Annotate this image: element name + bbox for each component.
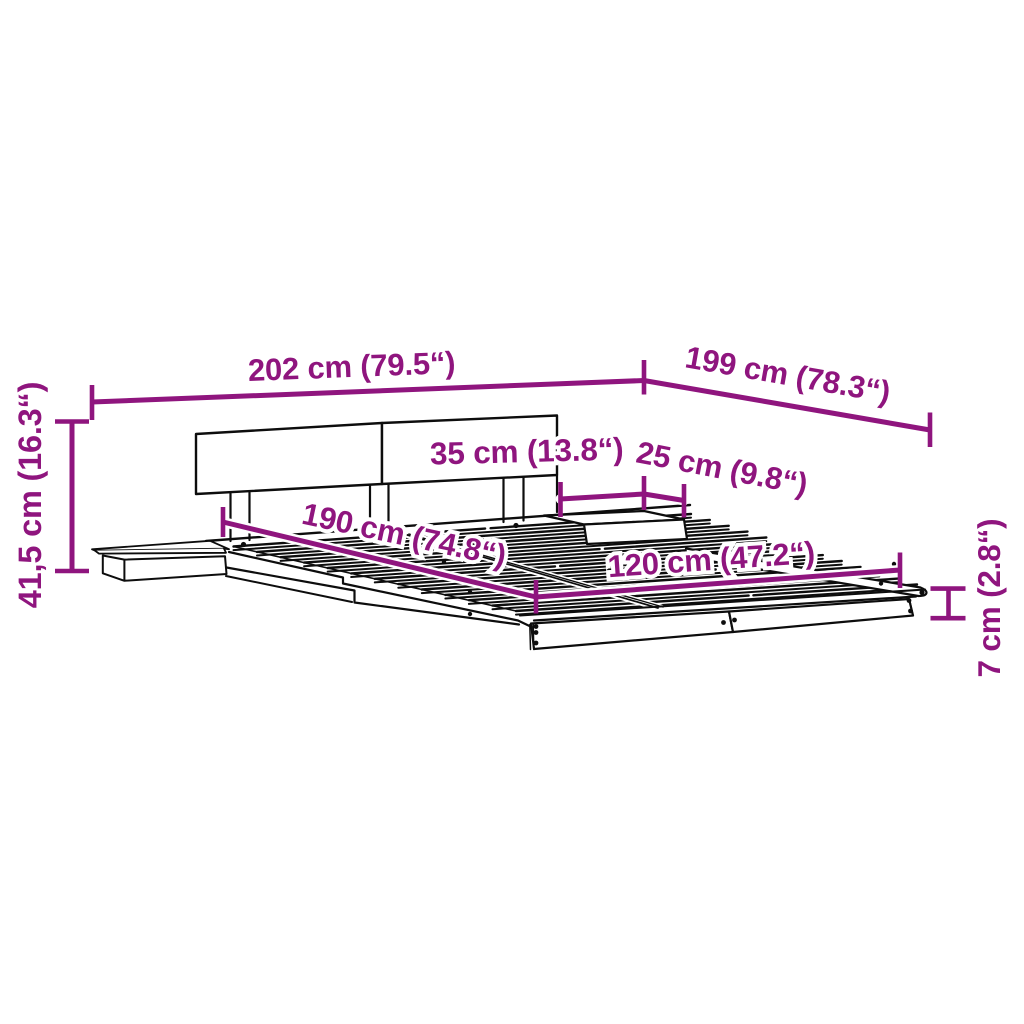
svg-text:41,5 cm (16.3“): 41,5 cm (16.3“)	[12, 382, 48, 608]
svg-text:7 cm (2.8“): 7 cm (2.8“)	[971, 519, 1007, 678]
svg-text:35 cm (13.8“): 35 cm (13.8“)	[430, 430, 624, 471]
